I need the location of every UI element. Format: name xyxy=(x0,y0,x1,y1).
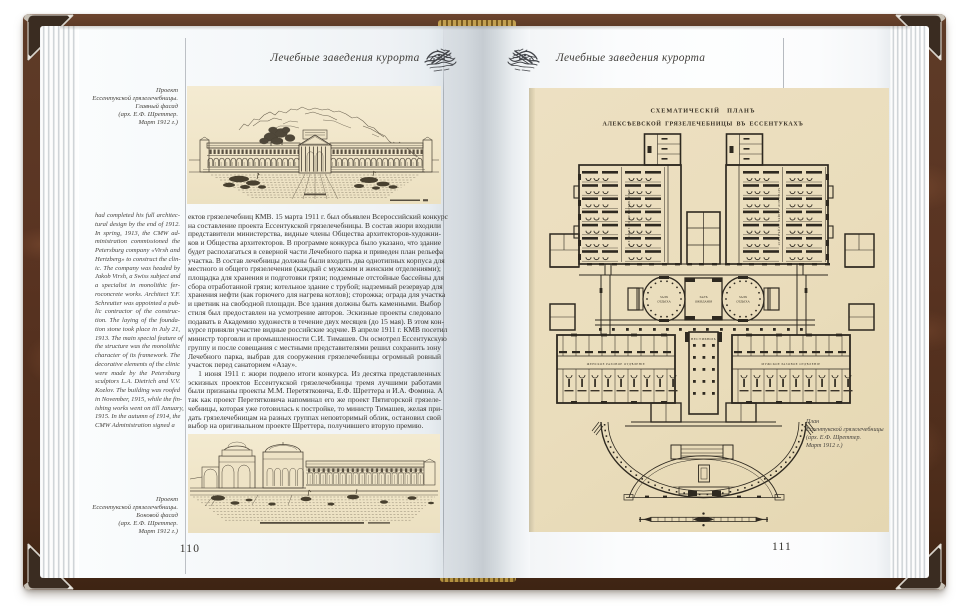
svg-text:ОТДЫХА: ОТДЫХА xyxy=(657,300,671,304)
svg-text:МУЖСКОЕ ОБЩЕЕ ОТДѢЛЕНІЕ: МУЖСКОЕ ОБЩЕЕ ОТДѢЛЕНІЕ xyxy=(777,188,781,246)
svg-text:ОТДЫХА: ОТДЫХА xyxy=(736,300,750,304)
svg-text:ЖЕНСКОЕ ОБЩЕЕ ОТДѢЛЕНІЕ: ЖЕНСКОЕ ОБЩЕЕ ОТДѢЛЕНІЕ xyxy=(627,188,631,245)
svg-text:ЗАЛЪ: ЗАЛЪ xyxy=(739,295,748,299)
svg-text:АЛЕКСѢЕВСКОЙ ГРЯЗЕЛЕЧЕБНИЦЫ ВЪ: АЛЕКСѢЕВСКОЙ ГРЯЗЕЛЕЧЕБНИЦЫ ВЪ ЕССЕНТУКА… xyxy=(603,120,804,128)
svg-text:ОЖИДАНІЯ: ОЖИДАНІЯ xyxy=(695,300,713,304)
svg-text:СХЕМАТИЧЕСКІЙ ПЛАНЪ: СХЕМАТИЧЕСКІЙ ПЛАНЪ xyxy=(650,107,755,115)
svg-text:ВЕСТИБЮЛЬ: ВЕСТИБЮЛЬ xyxy=(691,337,716,341)
svg-text:МУЖСКОЕ РАЗОВОЕ ОТДѢЛЕНІЕ: МУЖСКОЕ РАЗОВОЕ ОТДѢЛЕНІЕ xyxy=(761,362,820,366)
svg-text:ЗАЛЪ: ЗАЛЪ xyxy=(699,295,708,299)
svg-text:ЖЕНСКОЕ РАЗОВОЕ ОТДѢЛЕНІЕ: ЖЕНСКОЕ РАЗОВОЕ ОТДѢЛЕНІЕ xyxy=(587,362,645,366)
svg-text:ЗАЛЪ: ЗАЛЪ xyxy=(660,295,669,299)
